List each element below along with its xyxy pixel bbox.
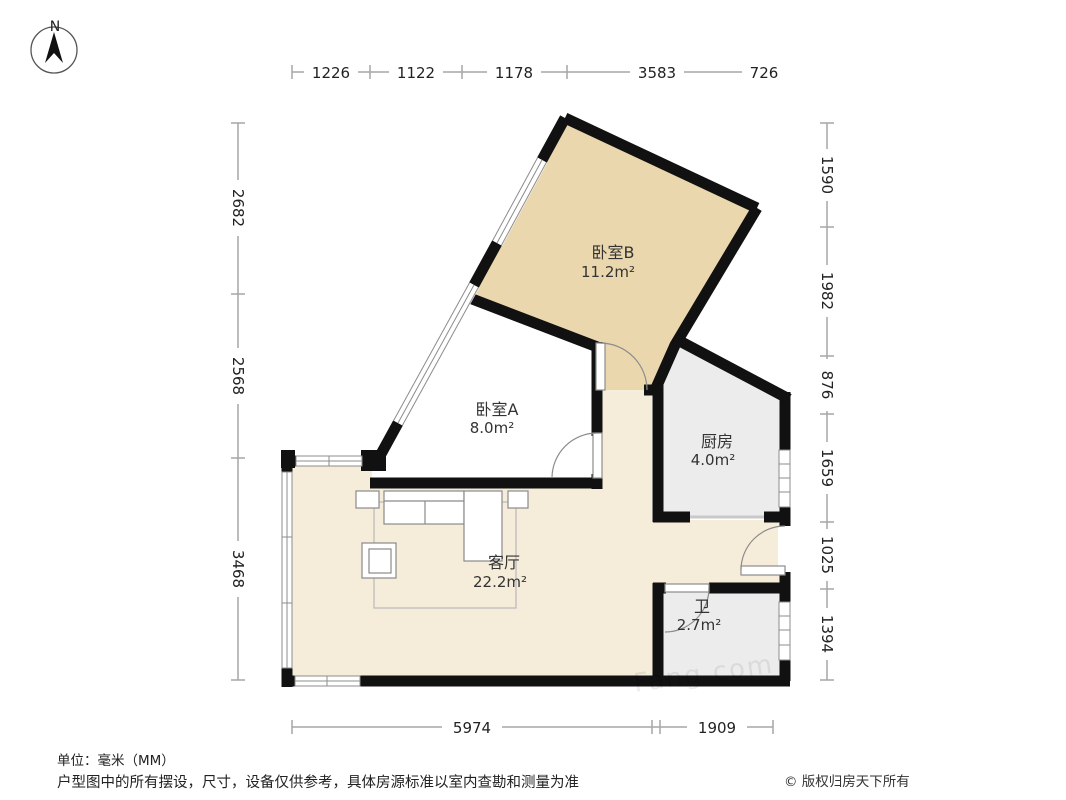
floorplan-page: Fang.com 卧室B 11.2m² 卧室A 8.0m² 厨房 4.0m² 客… [0,0,1066,800]
side-table-right [508,491,528,508]
dim-bottom-1: 5974 [453,719,491,737]
dim-right-2: 1982 [818,272,836,310]
dim-right-4: 1659 [818,449,836,487]
compass-label: N [50,19,60,35]
window-living-left [282,472,292,668]
kitchen-name: 厨房 [701,432,733,451]
dim-top-2: 1122 [397,64,435,82]
living-area: 22.2m² [473,573,527,591]
footer-unit-note: 单位：毫米（MM） [57,749,175,769]
entry-door-gap [778,526,792,572]
bedroom-b-area: 11.2m² [581,263,635,281]
window-living-top [296,456,362,466]
dim-top-4: 3583 [638,64,676,82]
window-kitchen [779,450,790,507]
dim-top-5: 726 [750,64,779,82]
dim-left-3: 3468 [229,550,247,588]
room-fills [290,118,785,683]
dim-top-3: 1178 [495,64,533,82]
bathroom-area: 2.7m² [677,616,721,634]
bedroom-b-name: 卧室B [592,243,635,262]
bedroom-a-name: 卧室A [476,400,519,419]
dim-right-6: 1394 [818,615,836,653]
dim-right-1: 1590 [818,156,836,194]
dim-right-5: 1025 [818,536,836,574]
living-name: 客厅 [488,553,520,572]
corner-block-tilt-base [361,450,386,471]
footer-copyright: © 版权归房天下所有 [784,770,910,790]
dim-top-1: 1226 [312,64,350,82]
compass: N [31,19,77,73]
window-bathroom [779,602,790,660]
dim-bottom-2: 1909 [698,719,736,737]
sofa-seat [384,491,464,524]
bedroom-a-area: 8.0m² [470,419,514,437]
dim-left-2: 2568 [229,357,247,395]
side-table-left [356,491,379,508]
dim-right-3: 876 [818,371,836,400]
floorplan-drawing: Fang.com 卧室B 11.2m² 卧室A 8.0m² 厨房 4.0m² 客… [0,0,1066,800]
window-living-bottom [295,676,360,686]
bathroom-name: 卫 [694,597,710,616]
corner-block-top-left [281,450,295,468]
kitchen-area: 4.0m² [691,451,735,469]
sofa-chaise [464,491,502,561]
footer-disclaimer: 户型图中的所有摆设，尺寸，设备仅供参考，具体房源标准以室内查勘和测量为准 [57,771,579,792]
dim-left-1: 2682 [229,189,247,227]
